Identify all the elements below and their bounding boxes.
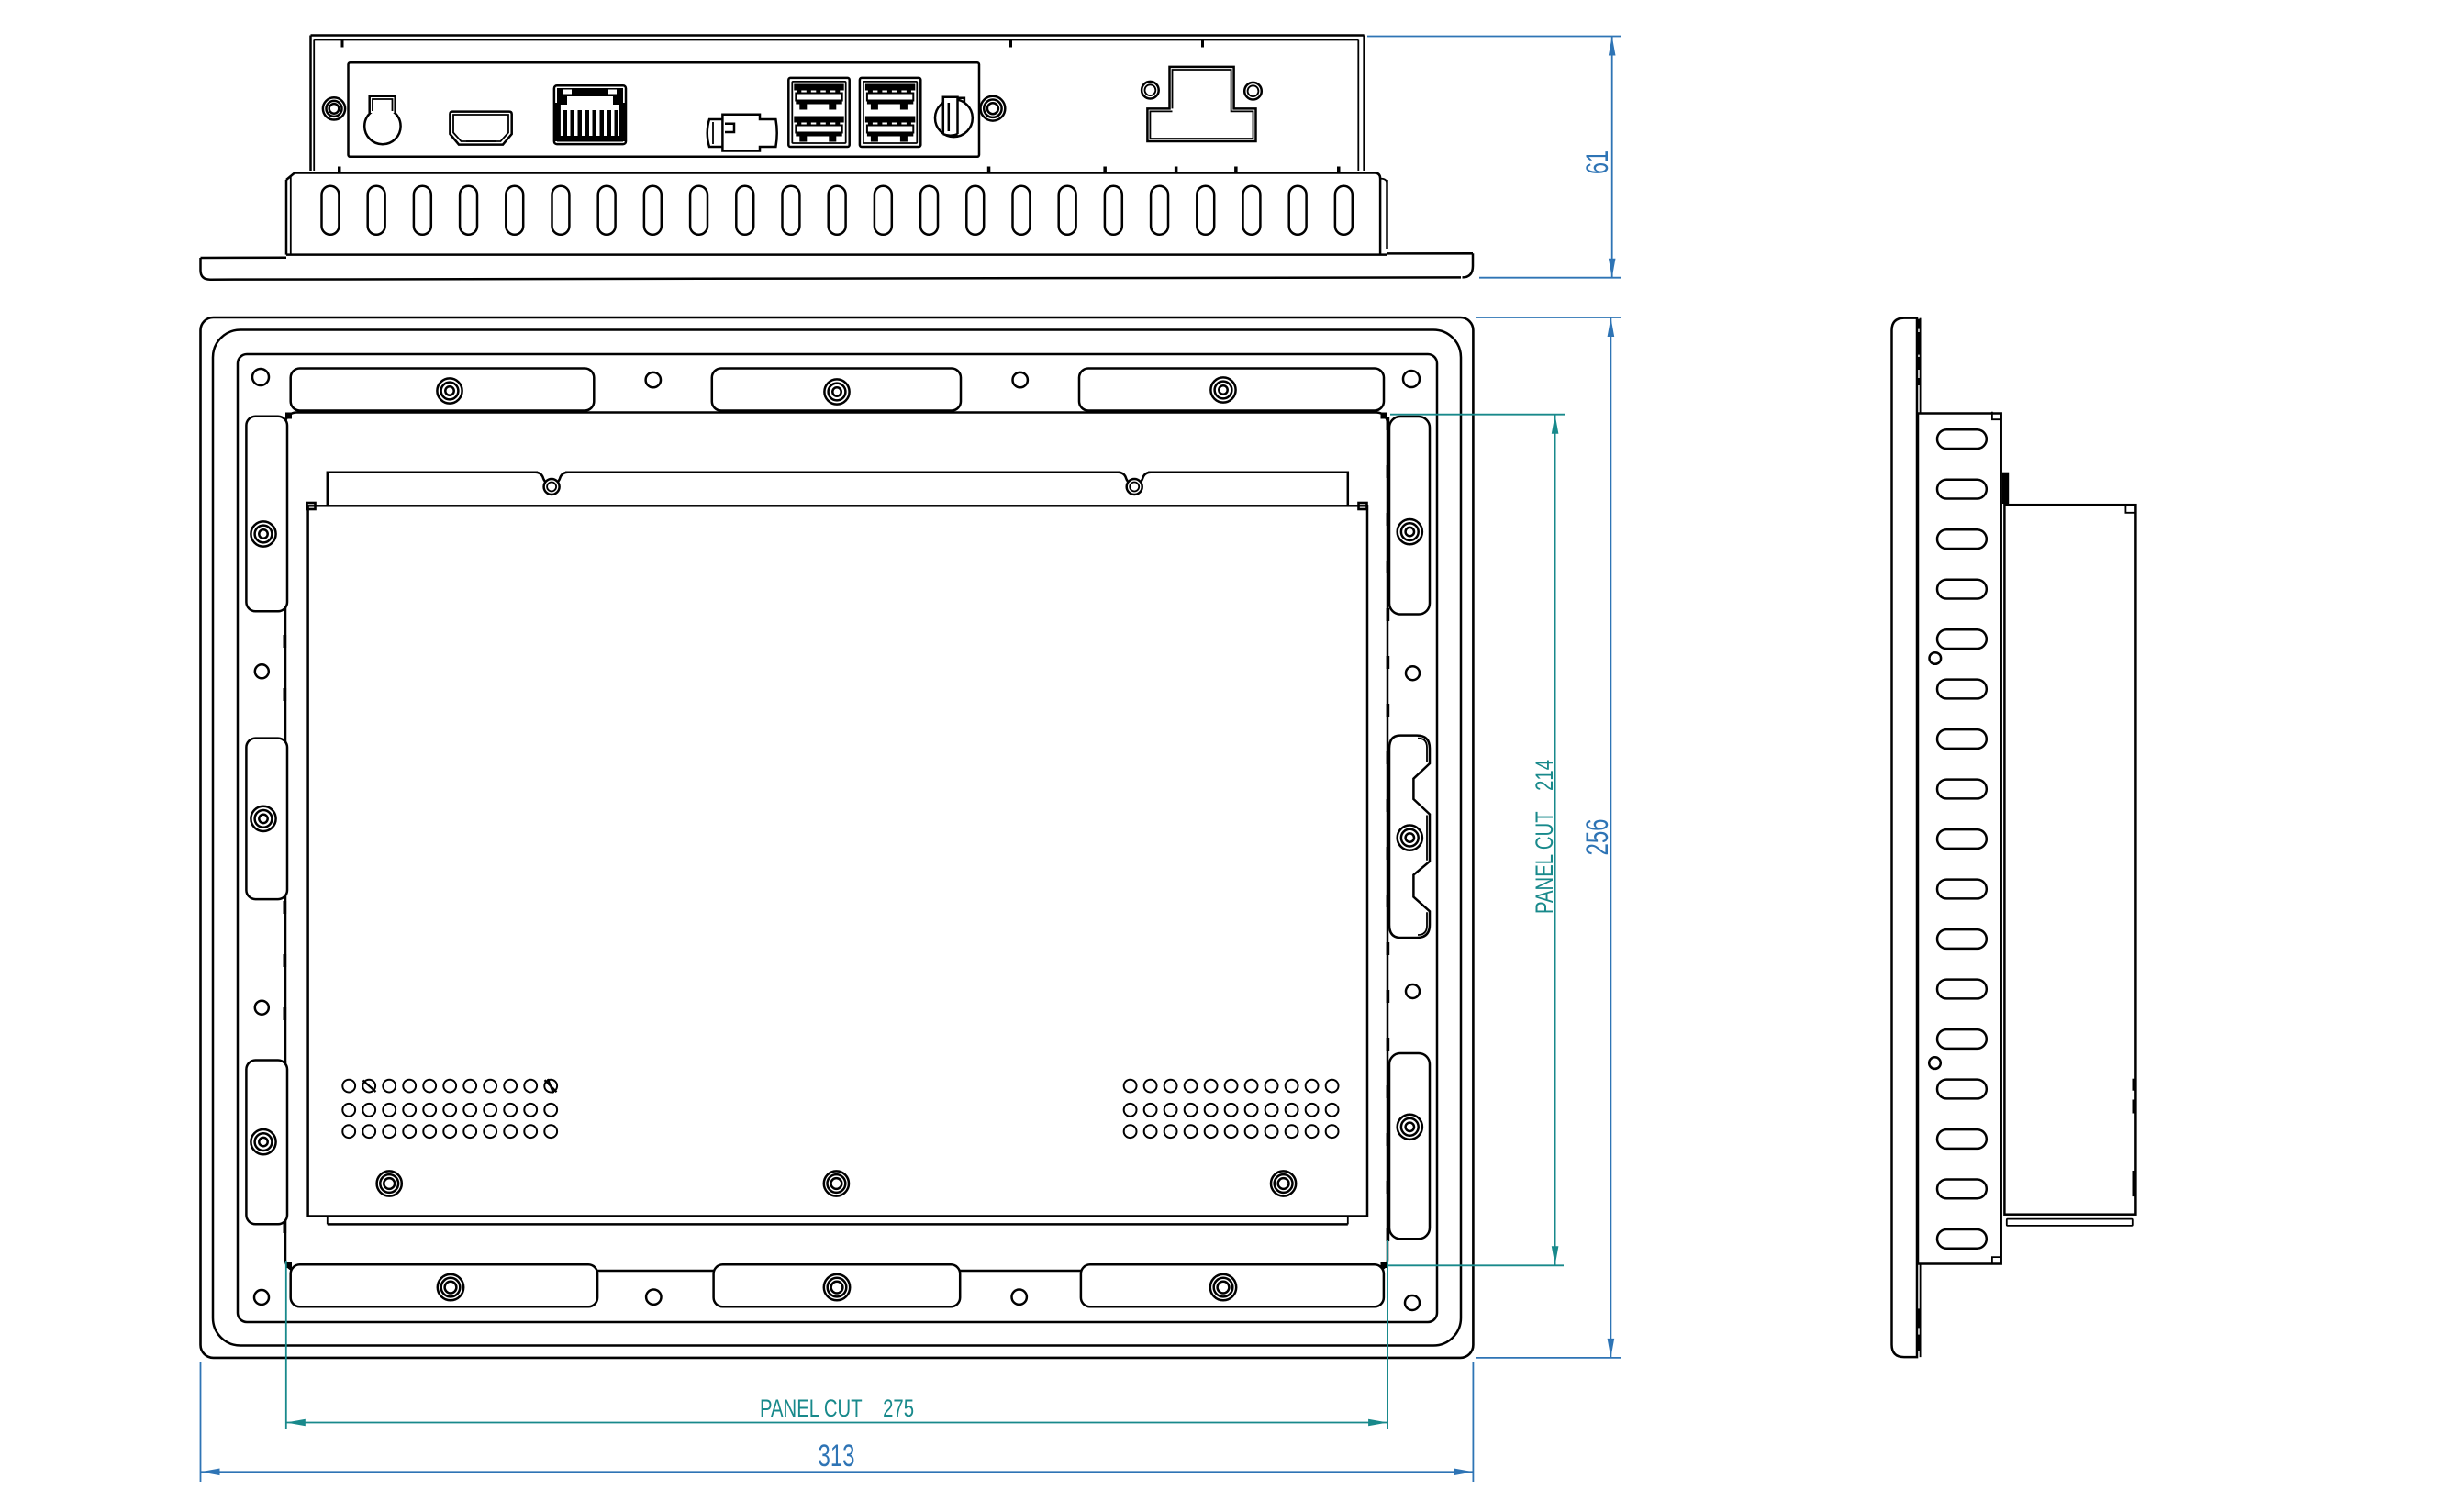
- svg-text:PANEL CUT 275: PANEL CUT 275: [760, 1395, 914, 1422]
- svg-text:PANEL CUT 214: PANEL CUT 214: [1531, 760, 1558, 914]
- svg-text:313: 313: [819, 1439, 855, 1473]
- svg-text:61: 61: [1580, 150, 1615, 174]
- svg-text:256: 256: [1580, 819, 1615, 856]
